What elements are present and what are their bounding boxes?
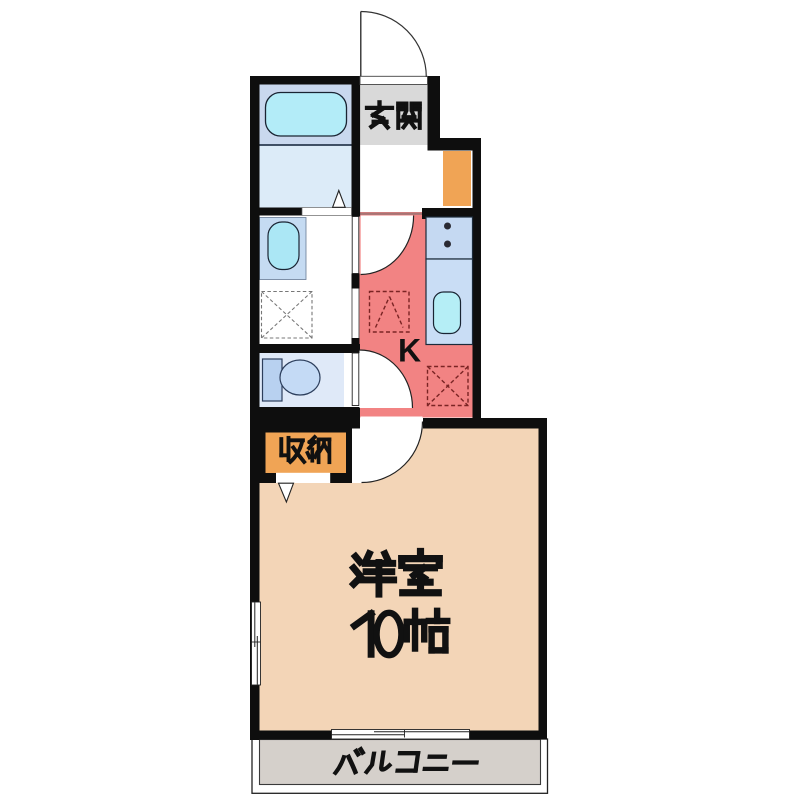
svg-text:K: K <box>398 333 421 369</box>
